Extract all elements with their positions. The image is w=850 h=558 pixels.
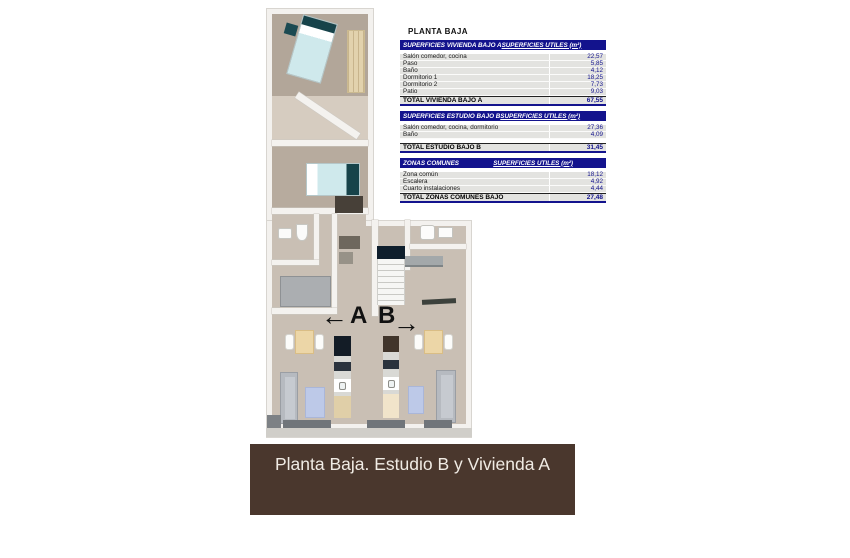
kitchen-sink-icon [334, 379, 351, 392]
row-label: Dormitorio 2 [400, 82, 549, 88]
row-value: 4,44 [549, 186, 606, 192]
cooktop-icon [334, 362, 351, 371]
row-label: Baño [400, 132, 549, 138]
table-header: SUPERFICIES ESTUDIO BAJO BSUPERFICIES UT… [400, 111, 606, 121]
row-label: Patio [400, 89, 549, 95]
kitchen-counter-left [334, 336, 351, 418]
wall-utility [332, 214, 337, 314]
table-row: Dormitorio 27,73 [400, 82, 606, 89]
bed-icon [306, 163, 360, 196]
row-label: Cuarto instalaciones [400, 186, 549, 192]
wall-bathroom-2 [410, 244, 466, 249]
window-segment [367, 420, 405, 428]
total-label: TOTAL VIVIENDA BAJO A [400, 97, 549, 104]
table-header: ZONAS COMUNESSUPERFICIES UTILES (m²) [400, 158, 606, 168]
facade-corner [267, 415, 281, 428]
stair-landing [377, 246, 405, 259]
window-segment [424, 420, 452, 428]
arrow-left-icon: ← [321, 303, 348, 330]
total-label: TOTAL ESTUDIO BAJO B [400, 144, 549, 151]
table-row: Patio9,03 [400, 89, 606, 96]
chair-icon [315, 334, 324, 350]
wardrobe-icon [347, 30, 365, 93]
total-label: TOTAL ZONAS COMUNES BAJO [400, 194, 549, 201]
row-value: 9,03 [549, 89, 606, 95]
page: ← A B → PLANTA BAJA SUPERFICIES VIVIENDA… [0, 0, 850, 558]
window-segment [283, 420, 331, 428]
dining-table-icon [424, 330, 443, 354]
table-row: Cuarto instalaciones4,44 [400, 186, 606, 193]
kitchen-sink-icon [383, 377, 399, 390]
table-header-title: ZONAS COMUNES [403, 160, 459, 167]
table-row: Paso5,85 [400, 61, 606, 68]
cabinet-icon [339, 252, 353, 264]
table-header: SUPERFICIES VIVIENDA BAJO ASUPERFICIES U… [400, 40, 606, 50]
total-value: 31,45 [549, 144, 606, 151]
counter-icon [405, 256, 443, 267]
facade-sill [266, 428, 472, 437]
caption-text: Planta Baja. Estudio B y Vivienda A [250, 454, 575, 475]
row-label: Salón comedor, cocina [400, 54, 549, 60]
counter-wood [334, 396, 351, 418]
wardrobe-icon [335, 196, 363, 213]
sink-icon [438, 227, 453, 238]
unit-a-label: A [350, 304, 367, 328]
counter-wood [383, 394, 399, 418]
plan-title: PLANTA BAJA [408, 27, 468, 36]
table-total-row: TOTAL ZONAS COMUNES BAJO27,48 [400, 193, 606, 203]
caption-banner: Planta Baja. Estudio B y Vivienda A [250, 444, 575, 515]
cooktop-icon [383, 360, 399, 369]
wall-partition [272, 140, 368, 146]
sofa-icon [436, 370, 456, 423]
table-units-label: SUPERFICIES UTILES (m²) [493, 160, 573, 167]
sofa-icon [280, 372, 298, 424]
table-row: Salón comedor, cocina, dormitorio27,36 [400, 125, 606, 132]
table-total-row: TOTAL VIVIENDA BAJO A67,55 [400, 96, 606, 106]
rug-icon [408, 386, 424, 414]
toilet-icon [296, 224, 308, 241]
staircase-icon [377, 259, 405, 305]
table-row: Baño4,09 [400, 132, 606, 139]
table-header-title: SUPERFICIES VIVIENDA BAJO A [403, 42, 502, 49]
table-row: Zona común18,12 [400, 172, 606, 179]
table-units-label: SUPERFICIES UTILES (m²) [500, 113, 580, 120]
total-value: 27,48 [549, 194, 606, 201]
wall-bathroom [272, 260, 319, 265]
row-value: 4,09 [549, 132, 606, 138]
total-value: 67,55 [549, 97, 606, 104]
row-label: Salón comedor, cocina, dormitorio [400, 125, 549, 131]
dining-table-icon [295, 330, 314, 354]
counter-appliance [383, 336, 399, 352]
rug-icon [305, 387, 325, 418]
table-units-label: SUPERFICIES UTILES (m²) [502, 42, 582, 49]
row-label: Paso [400, 61, 549, 67]
kitchen-counter-right [383, 336, 399, 418]
chair-icon [444, 334, 453, 350]
table-header-title: SUPERFICIES ESTUDIO BAJO B [403, 113, 500, 120]
counter-appliance [334, 336, 351, 356]
cabinet-icon [339, 236, 360, 249]
wall-bathroom [314, 214, 319, 264]
arrow-right-icon: → [393, 310, 420, 337]
sink-icon [278, 228, 292, 239]
table-row: Salón comedor, cocina22,57 [400, 54, 606, 61]
surface-tables: SUPERFICIES VIVIENDA BAJO ASUPERFICIES U… [400, 40, 606, 203]
table-total-row: TOTAL ESTUDIO BAJO B31,45 [400, 143, 606, 153]
toilet-icon [420, 225, 435, 240]
chair-icon [285, 334, 294, 350]
